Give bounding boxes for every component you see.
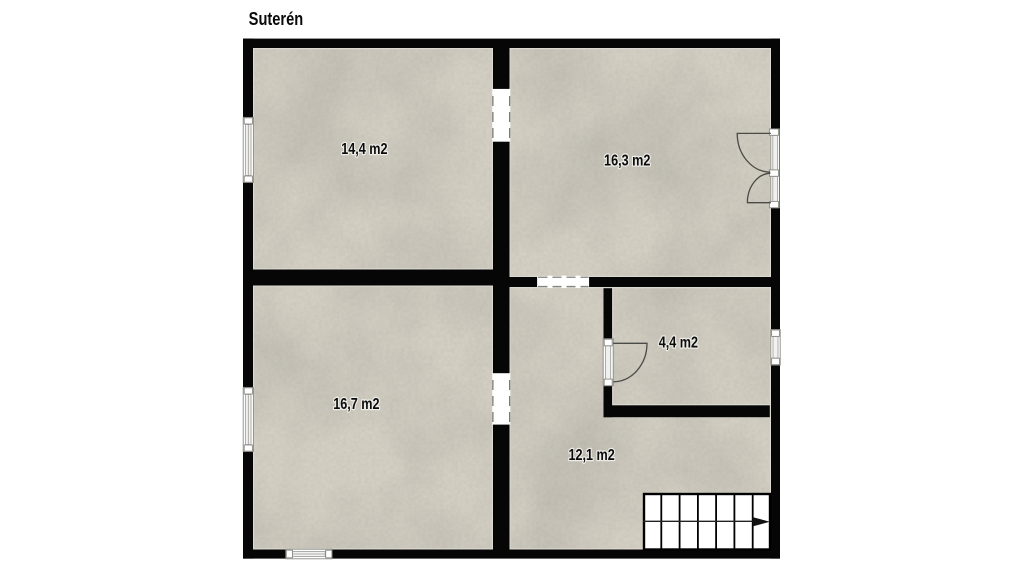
svg-text:12,1 m2: 12,1 m2	[568, 446, 614, 463]
svg-text:16,7 m2: 16,7 m2	[333, 395, 379, 412]
svg-text:4,4 m2: 4,4 m2	[659, 333, 698, 350]
svg-text:Suterén: Suterén	[249, 9, 304, 30]
svg-text:14,4 m2: 14,4 m2	[341, 140, 387, 157]
svg-text:16,3 m2: 16,3 m2	[604, 151, 650, 168]
